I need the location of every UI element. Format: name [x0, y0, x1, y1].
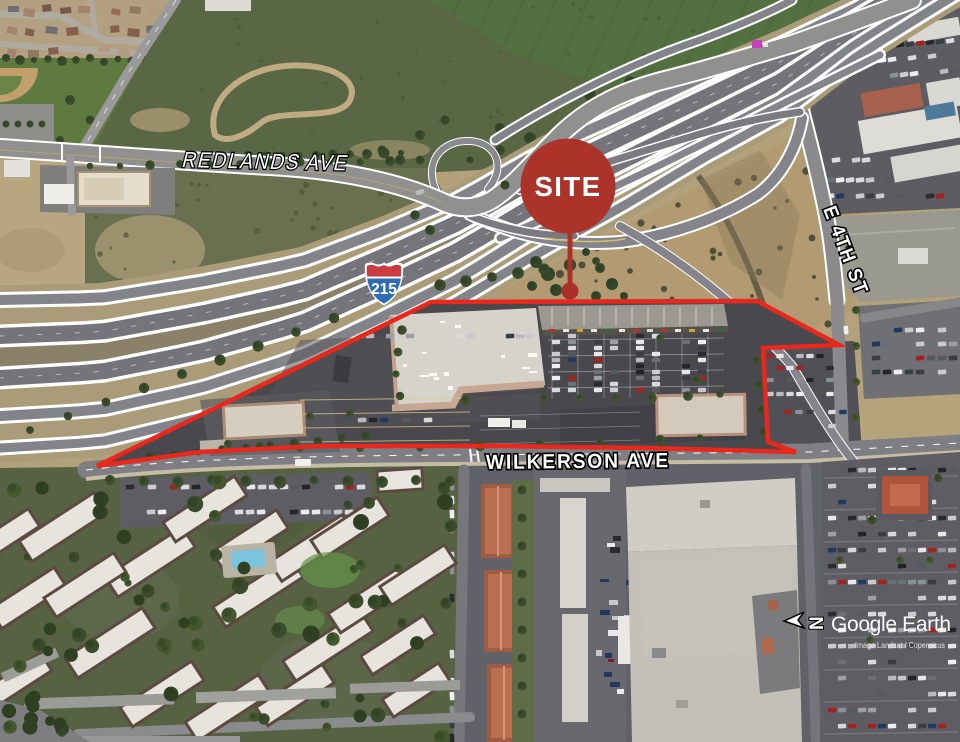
svg-text:N: N — [807, 616, 828, 630]
svg-text:WILKERSON AVE: WILKERSON AVE — [486, 449, 670, 474]
svg-text:Image Landsat / Copernicus: Image Landsat / Copernicus — [855, 641, 945, 650]
svg-text:REDLANDS AVE: REDLANDS AVE — [180, 147, 352, 175]
svg-text:Google Earth: Google Earth — [831, 613, 951, 636]
svg-text:SITE: SITE — [534, 171, 601, 202]
svg-text:215: 215 — [371, 281, 397, 298]
